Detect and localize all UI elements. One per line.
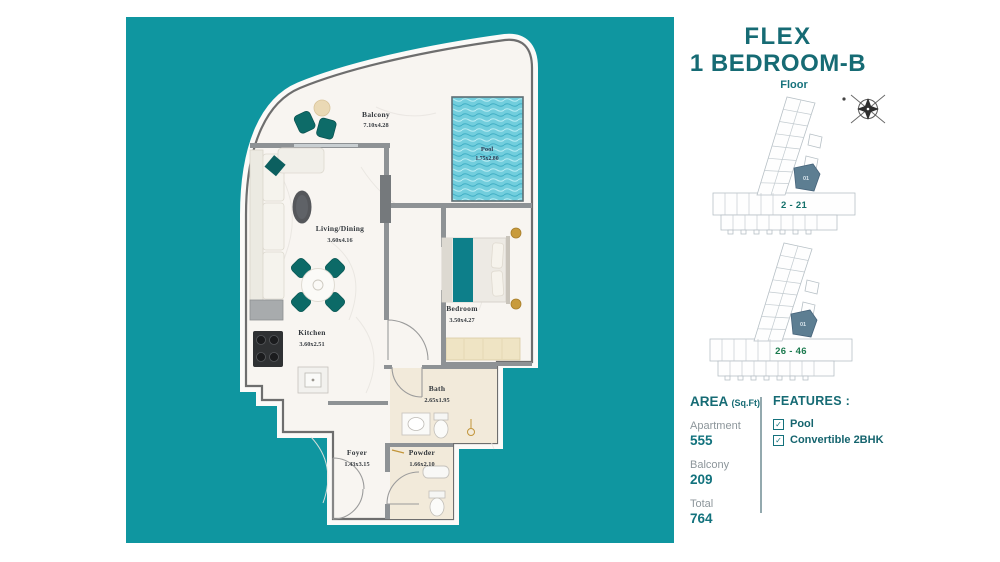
area-label: Apartment [690,420,760,432]
room-dims-foyer: 1.43x3.15 [344,461,369,468]
room-dims-powder: 1.66x2.10 [409,461,434,468]
features-section: FEATURES : ✓ Pool ✓ Convertible 2BHK [773,394,983,446]
floor-plan: Balcony 7.10x4.28 Pool 1.75x2.80 Living/… [126,17,674,543]
key-plan-floors-26-46: 01 26 - 46 [707,240,857,382]
sconce [511,228,521,238]
room-label-bath: Bath [429,384,446,393]
checkbox-icon: ✓ [773,419,784,430]
page-title: FLEX 1 BEDROOM-B [688,24,868,78]
area-item-apartment: Apartment 555 [690,420,760,448]
area-label: Total [690,498,760,510]
area-section: AREA (Sq.Ft) Apartment 555 Balcony 209 T… [690,394,760,526]
room-label-bedroom: Bedroom [446,304,478,313]
highlighted-unit-label: 01 [800,322,806,328]
room-dims-bath: 2.65x1.95 [424,397,449,404]
room-dims-kitchen: 3.60x2.51 [299,341,324,348]
title-line1: FLEX [688,24,868,50]
feature-label: Convertible 2BHK [790,434,884,446]
area-label: Balcony [690,459,760,471]
room-dims-bedroom: 3.50x4.27 [449,317,474,324]
coffee-table-top [296,195,308,219]
sconce [511,299,521,309]
room-dims-balcony: 7.10x4.28 [363,122,388,129]
area-item-total: Total 764 [690,498,760,526]
feature-label: Pool [790,418,814,430]
area-heading: AREA (Sq.Ft) [690,394,760,409]
stove [253,331,283,367]
section-divider [760,397,762,513]
room-label-foyer: Foyer [347,448,368,457]
room-label-kitchen: Kitchen [298,328,326,337]
room-label-balcony: Balcony [362,110,390,119]
key-plan-floors-2-21: 01 2 - 21 [710,94,860,236]
room-dims-living: 3.60x4.16 [327,237,352,244]
feature-item-pool: ✓ Pool [773,418,983,430]
area-value: 209 [690,472,760,487]
area-heading-unit: (Sq.Ft) [732,398,761,408]
bed [442,236,510,304]
balcony-glass-door [294,144,358,147]
area-heading-text: AREA [690,394,728,409]
sliding-door-panel [380,175,391,223]
room-label-powder: Powder [409,448,436,457]
floor-range-label: 2 - 21 [781,200,808,211]
highlighted-unit-label: 01 [803,176,809,182]
features-heading: FEATURES : [773,394,983,408]
title-line2: 1 BEDROOM-B [688,50,868,78]
brochure-page: Balcony 7.10x4.28 Pool 1.75x2.80 Living/… [0,0,1000,562]
room-label-pool: Pool [481,146,493,153]
bed-runner [453,238,473,302]
area-value: 555 [690,433,760,448]
area-item-balcony: Balcony 209 [690,459,760,487]
floorplan-panel: Balcony 7.10x4.28 Pool 1.75x2.80 Living/… [126,17,674,543]
area-value: 764 [690,511,760,526]
room-label-living: Living/Dining [316,224,365,233]
headboard [506,236,510,304]
balcony-table [314,100,330,116]
feature-item-convertible: ✓ Convertible 2BHK [773,434,983,446]
floor-range-label: 26 - 46 [775,346,807,357]
checkbox-icon: ✓ [773,435,784,446]
room-dims-pool: 1.75x2.80 [475,156,498,162]
